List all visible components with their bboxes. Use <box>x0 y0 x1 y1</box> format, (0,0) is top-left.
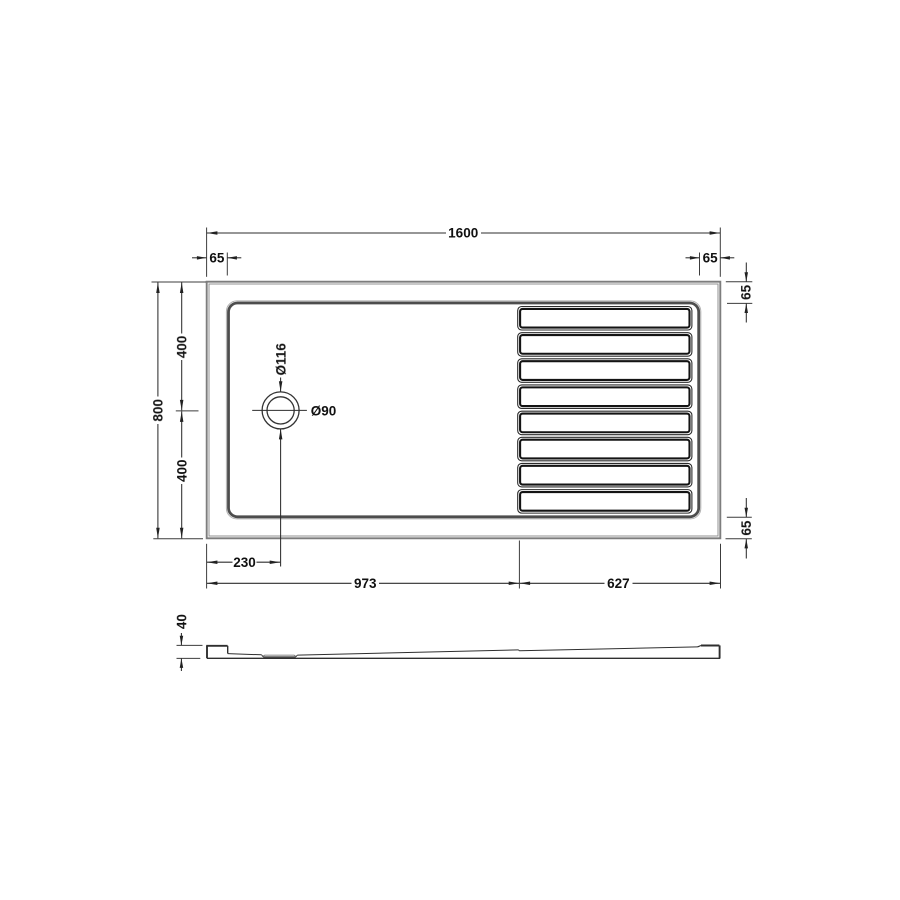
svg-text:65: 65 <box>209 251 225 266</box>
svg-text:40: 40 <box>174 614 189 629</box>
svg-text:973: 973 <box>354 576 377 591</box>
svg-text:Ø116: Ø116 <box>274 343 289 376</box>
svg-text:65: 65 <box>703 251 719 266</box>
svg-text:1600: 1600 <box>448 226 478 241</box>
svg-text:65: 65 <box>739 284 754 300</box>
svg-text:627: 627 <box>607 576 630 591</box>
svg-text:400: 400 <box>175 336 190 359</box>
svg-text:Ø90: Ø90 <box>311 403 337 418</box>
svg-text:800: 800 <box>151 399 166 422</box>
svg-text:230: 230 <box>233 555 256 570</box>
svg-text:65: 65 <box>739 520 754 536</box>
svg-text:400: 400 <box>174 459 189 482</box>
